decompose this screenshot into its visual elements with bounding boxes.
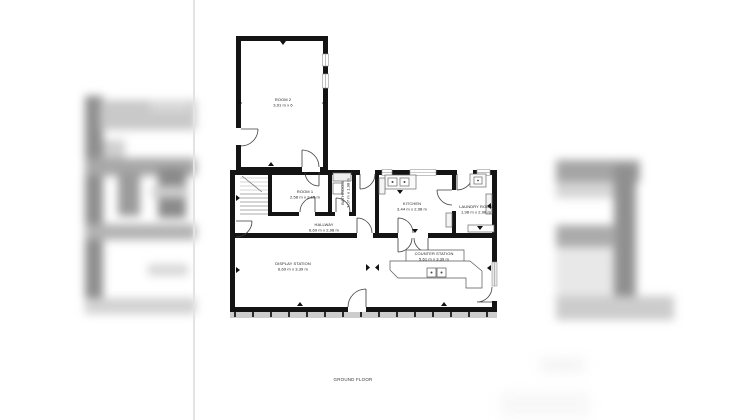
room-label-room1: ROOM 1 2,58 m x 2,15 m [290, 190, 320, 201]
marker-triangle [236, 267, 240, 273]
room-label-hallway: HALLWAY 6,69 m x 2,98 m [309, 223, 339, 234]
room-name: COUNTER STATION [415, 252, 454, 257]
stairs [240, 176, 268, 214]
room-label-counter-station: COUNTER STATION 5,61 m x 3,39 m [415, 252, 454, 263]
wall-gaps [236, 128, 497, 312]
room-dims: 6,69 m x 3,39 m [275, 267, 311, 272]
kitchen-stove [385, 175, 416, 189]
room-dims: 1,07 m x 1,98 m [346, 178, 351, 208]
room-label-room2: ROOM 2 3,91 m x 6 [273, 98, 292, 109]
wall [375, 170, 379, 238]
door-hall-display [357, 218, 372, 233]
wall [230, 170, 235, 238]
kitchen-cabinet [379, 178, 385, 194]
room-dims: 6,69 m x 2,98 m [309, 228, 339, 233]
wall [352, 172, 356, 216]
wall [230, 233, 235, 312]
floorplan-page: ROOM 2 3,91 m x 6 ROOM 1 2,58 m x 2,15 m… [0, 0, 750, 420]
window [492, 262, 497, 286]
marker-triangle [487, 265, 491, 271]
door-counter-right [477, 287, 492, 302]
room-dims: 1,98 m x 2,98 m [459, 210, 492, 215]
wall [236, 36, 328, 41]
kitchen-fixture [446, 213, 452, 227]
window [410, 170, 436, 176]
wall [328, 172, 332, 216]
door-display-bottom [348, 289, 366, 307]
floorplan-svg [0, 0, 750, 420]
marker-triangle [236, 195, 240, 201]
room-dims: 3,44 m x 2,98 m [397, 207, 427, 212]
room-name: BATHROOM [341, 178, 346, 208]
door-room2-bottom [302, 150, 319, 167]
laundry-sink [470, 174, 486, 187]
room-dims: 2,58 m x 2,15 m [290, 195, 320, 200]
room-label-display-station: DISPLAY STATION 6,69 m x 3,39 m [275, 262, 311, 273]
floor-caption: GROUND FLOOR [334, 377, 373, 382]
room-name: DISPLAY STATION [275, 262, 311, 267]
marker-triangle [441, 302, 447, 306]
door-corridor [360, 174, 375, 189]
wall [268, 172, 272, 216]
marker-triangle [397, 190, 403, 194]
room-label-bathroom: BATHROOM 1,07 m x 1,98 m [341, 178, 352, 208]
door-kitchen-bottom [398, 218, 413, 233]
room-label-kitchen: KITCHEN 3,44 m x 2,98 m [397, 202, 427, 213]
window [323, 74, 329, 88]
room-dims: 3,91 m x 6 [273, 103, 292, 108]
window [323, 54, 329, 66]
room-name: ROOM 2 [273, 98, 292, 103]
double-door-marker [375, 264, 379, 271]
window [382, 170, 392, 176]
room-dims: 5,61 m x 3,39 m [415, 257, 454, 262]
marker-triangle [297, 302, 303, 306]
room-name: LAUNDRY ROOM [459, 205, 492, 210]
door-room2-left [241, 129, 258, 146]
marker-triangle [280, 41, 286, 45]
hatch-strip [230, 312, 497, 318]
marker-triangle [268, 162, 274, 166]
double-door-marker [366, 264, 370, 271]
door-kitchen-right [437, 190, 452, 205]
room-label-laundry: LAUNDRY ROOM 1,98 m x 2,98 m [459, 205, 492, 216]
